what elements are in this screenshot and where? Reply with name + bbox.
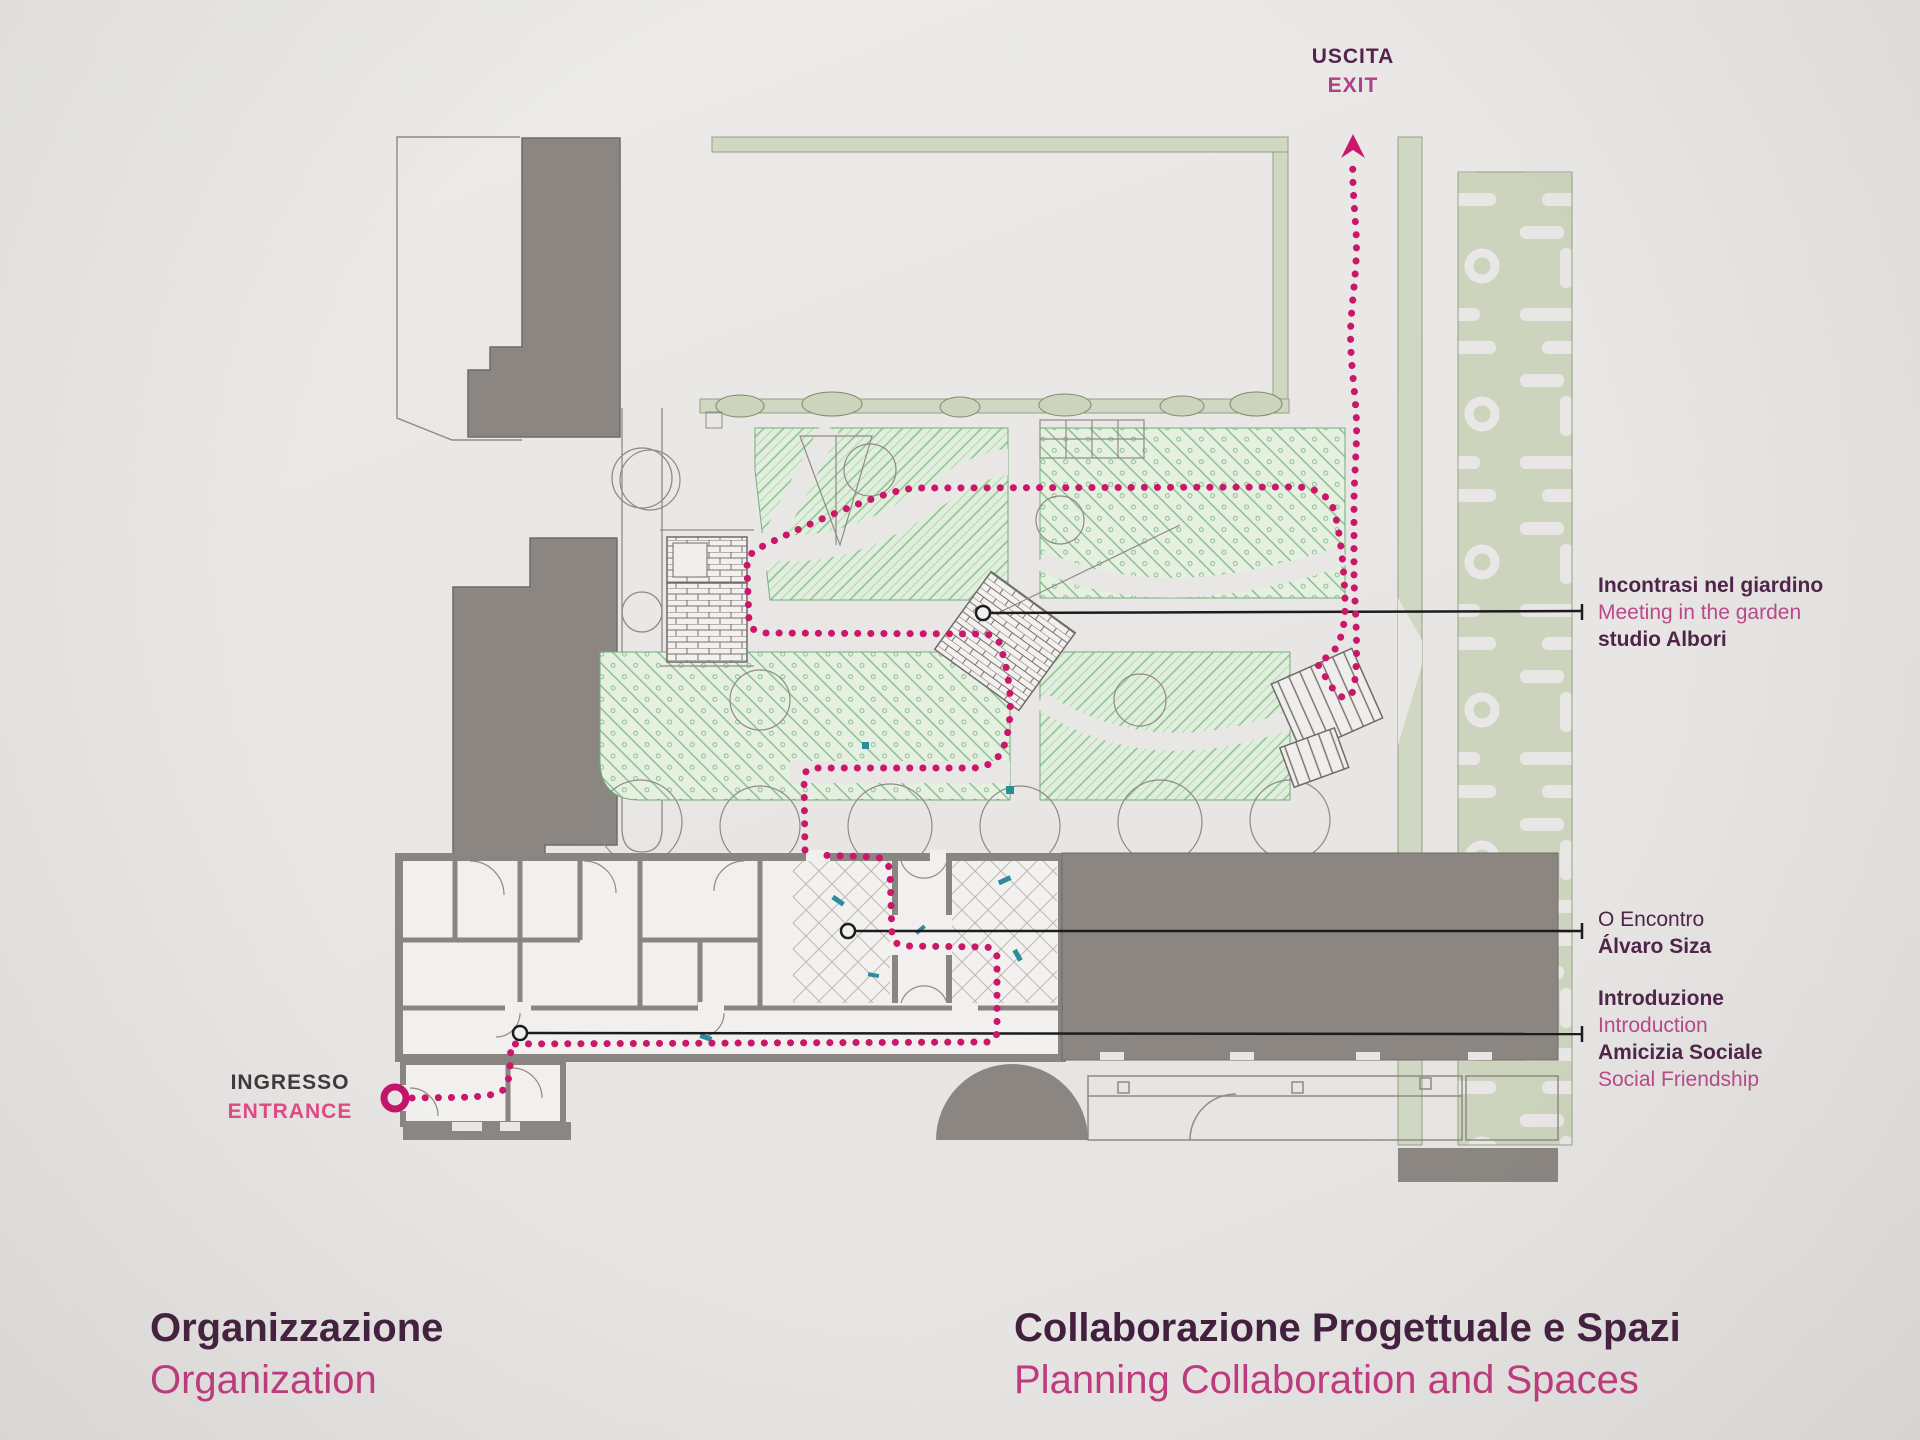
dome-footprint bbox=[936, 1064, 1088, 1140]
callout-title-en: Introduction bbox=[1598, 1012, 1763, 1039]
exit-label-it: USCITA bbox=[1243, 42, 1463, 71]
exit-arrow-icon bbox=[1341, 134, 1365, 158]
entrance-label: INGRESSO ENTRANCE bbox=[180, 1068, 400, 1126]
callout-meeting-in-the-garden: Incontrasi nel giardino Meeting in the g… bbox=[1598, 572, 1823, 653]
building-block-north bbox=[468, 138, 620, 437]
entrance-label-en: ENTRANCE bbox=[180, 1097, 400, 1126]
callout-o-encontro: O Encontro Álvaro Siza bbox=[1598, 906, 1711, 960]
exit-label-en: EXIT bbox=[1243, 71, 1463, 100]
callout-title-it: Introduzione bbox=[1598, 985, 1763, 1012]
callout-title-it: Incontrasi nel giardino bbox=[1598, 572, 1823, 599]
callout-title2-en: Social Friendship bbox=[1598, 1066, 1763, 1093]
pavilion-albori-tower bbox=[660, 530, 754, 666]
callout-author: Álvaro Siza bbox=[1598, 933, 1711, 960]
exit-label: USCITA EXIT bbox=[1243, 42, 1463, 100]
poster-background: USCITA EXIT INGRESSO ENTRANCE Incontrasi… bbox=[0, 0, 1920, 1440]
footer-right-title: Collaborazione Progettuale e Spazi Plann… bbox=[1014, 1302, 1681, 1406]
hedge-courtyard bbox=[700, 137, 1289, 428]
building-block-west bbox=[453, 538, 617, 857]
callout-introduction: Introduzione Introduction Amicizia Socia… bbox=[1598, 985, 1763, 1093]
entrance-label-it: INGRESSO bbox=[180, 1068, 400, 1097]
footer-right-en: Planning Collaboration and Spaces bbox=[1014, 1354, 1681, 1406]
footer-right-it: Collaborazione Progettuale e Spazi bbox=[1014, 1302, 1681, 1354]
callout-title-en: Meeting in the garden bbox=[1598, 599, 1823, 626]
palazzo-plan bbox=[399, 850, 1558, 1140]
footer-left-en: Organization bbox=[150, 1354, 443, 1406]
footer-left-it: Organizzazione bbox=[150, 1302, 443, 1354]
callout-title-it: O Encontro bbox=[1598, 906, 1711, 933]
footer-left-title: Organizzazione Organization bbox=[150, 1302, 443, 1406]
site-plan bbox=[0, 0, 1920, 1440]
callout-title2-it: Amicizia Sociale bbox=[1598, 1039, 1763, 1066]
callout-author: studio Albori bbox=[1598, 626, 1823, 653]
